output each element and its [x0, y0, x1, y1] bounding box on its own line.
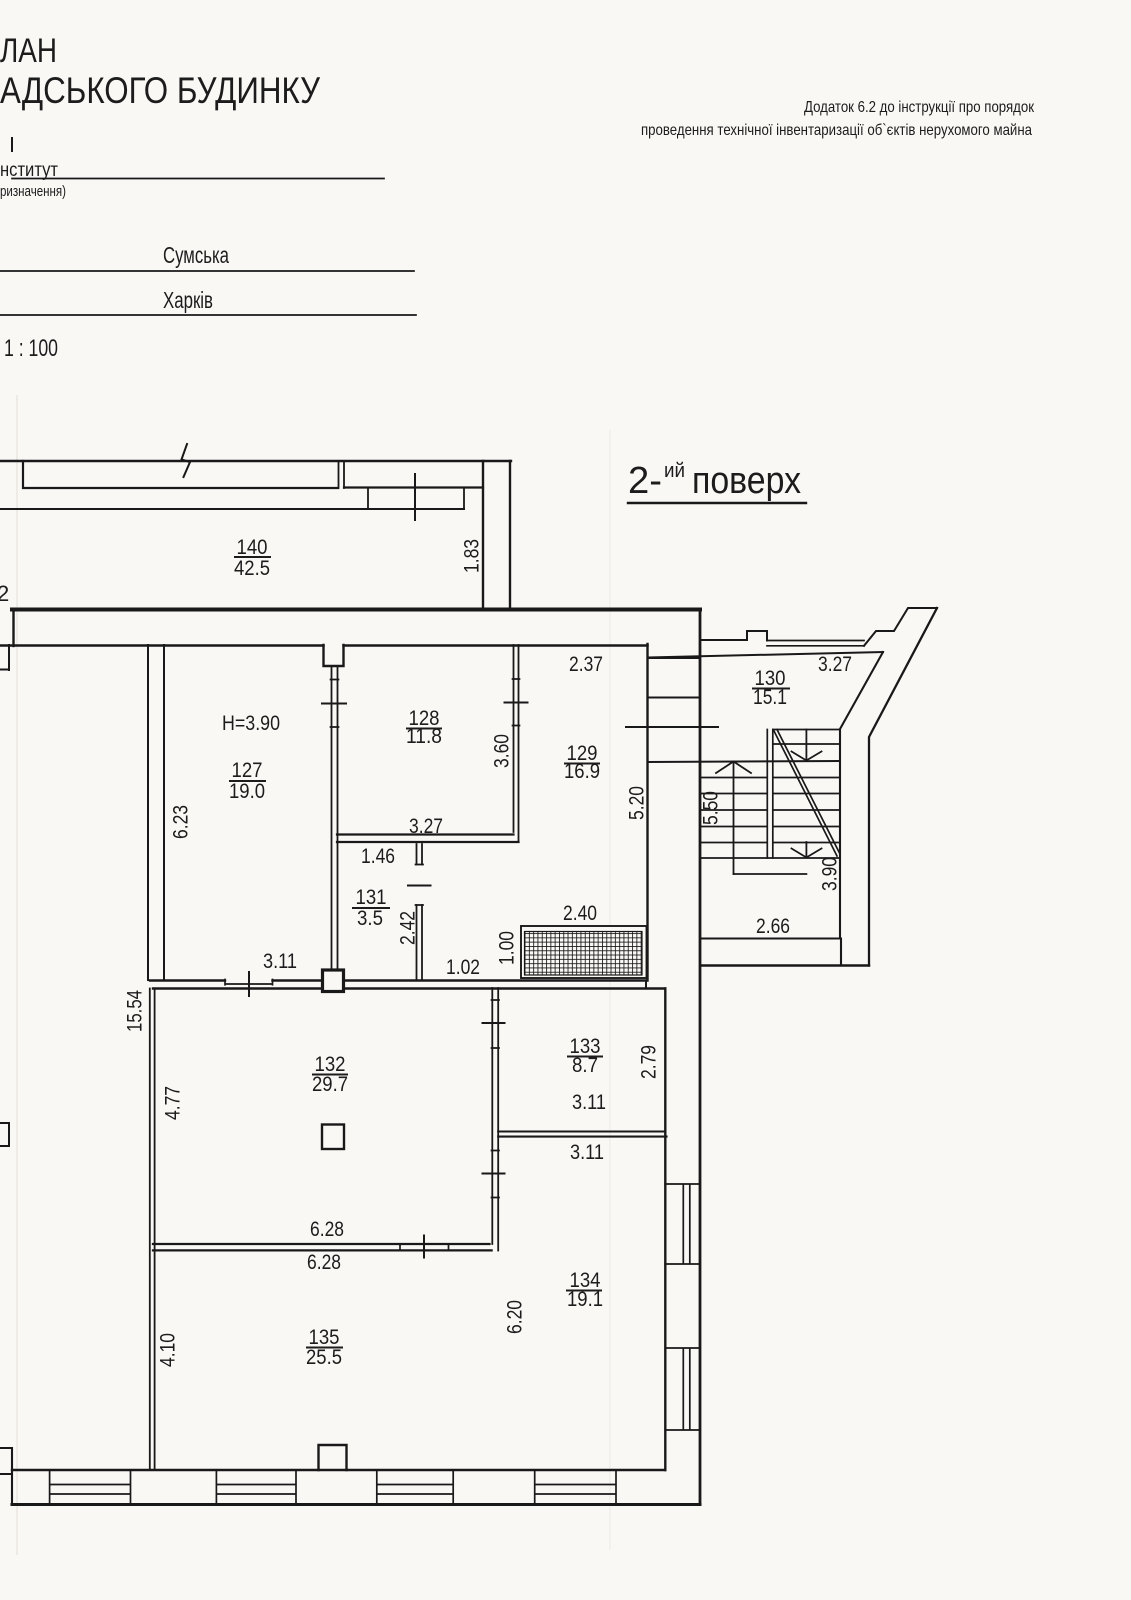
svg-text:1.02: 1.02 [446, 956, 480, 979]
svg-text:8.7: 8.7 [572, 1054, 598, 1077]
svg-text:4.77: 4.77 [162, 1086, 185, 1120]
svg-text:3.90: 3.90 [819, 857, 842, 891]
svg-text:1.83: 1.83 [461, 539, 484, 573]
svg-text:2-: 2- [628, 460, 662, 502]
svg-text:140: 140 [237, 536, 268, 559]
svg-text:3.60: 3.60 [491, 734, 514, 768]
svg-text:Сумська: Сумська [163, 242, 229, 268]
svg-text:ризначення): ризначення) [0, 184, 66, 200]
svg-text:3.27: 3.27 [818, 653, 852, 676]
svg-text:127: 127 [232, 759, 263, 782]
svg-text:проведення технічної інвентари: проведення технічної інвентаризації об`є… [641, 122, 1032, 139]
svg-text:1.46: 1.46 [361, 845, 395, 868]
svg-text:19.1: 19.1 [567, 1288, 603, 1311]
svg-text:2.42: 2.42 [397, 911, 420, 945]
svg-text:11.8: 11.8 [406, 725, 442, 748]
svg-text:15.54: 15.54 [124, 990, 147, 1032]
svg-text:1.00: 1.00 [496, 931, 519, 965]
svg-text:Додаток 6.2 до інструкції про: Додаток 6.2 до інструкції про порядок [804, 99, 1035, 116]
svg-text:16.9: 16.9 [564, 760, 600, 783]
svg-text:29.7: 29.7 [312, 1073, 348, 1096]
svg-text:42.5: 42.5 [234, 557, 270, 580]
svg-text:АДСЬКОГО БУДИНКУ: АДСЬКОГО БУДИНКУ [0, 70, 320, 111]
svg-text:ЛАН: ЛАН [0, 32, 57, 70]
svg-text:6.28: 6.28 [310, 1218, 344, 1241]
svg-text:ий: ий [664, 460, 685, 482]
svg-text:2.66: 2.66 [756, 915, 790, 938]
svg-text:131: 131 [356, 886, 387, 909]
svg-text:Харків: Харків [163, 287, 213, 313]
svg-text:5.50: 5.50 [700, 791, 723, 825]
svg-text:3.11: 3.11 [570, 1141, 604, 1164]
svg-text:15.1: 15.1 [753, 686, 787, 709]
svg-text:поверх: поверх [692, 460, 801, 502]
svg-text:3.5: 3.5 [357, 907, 383, 930]
svg-text:25.5: 25.5 [306, 1346, 342, 1369]
svg-text:3.11: 3.11 [572, 1091, 606, 1114]
svg-text:5.20: 5.20 [626, 786, 649, 820]
svg-text:2: 2 [0, 581, 9, 606]
svg-text:2.79: 2.79 [638, 1045, 661, 1079]
svg-text:3.11: 3.11 [263, 950, 297, 973]
svg-text:6.20: 6.20 [504, 1300, 527, 1334]
svg-text:H=3.90: H=3.90 [222, 712, 280, 735]
svg-text:3.27: 3.27 [409, 815, 443, 838]
svg-text:2.40: 2.40 [563, 902, 597, 925]
svg-text:19.0: 19.0 [229, 780, 265, 803]
svg-text:6.23: 6.23 [170, 805, 193, 839]
svg-text:1 : 100: 1 : 100 [4, 335, 58, 362]
svg-text:4.10: 4.10 [157, 1333, 180, 1367]
svg-text:нститут: нститут [0, 160, 58, 181]
svg-text:2.37: 2.37 [569, 653, 603, 676]
svg-text:6.28: 6.28 [307, 1251, 341, 1274]
